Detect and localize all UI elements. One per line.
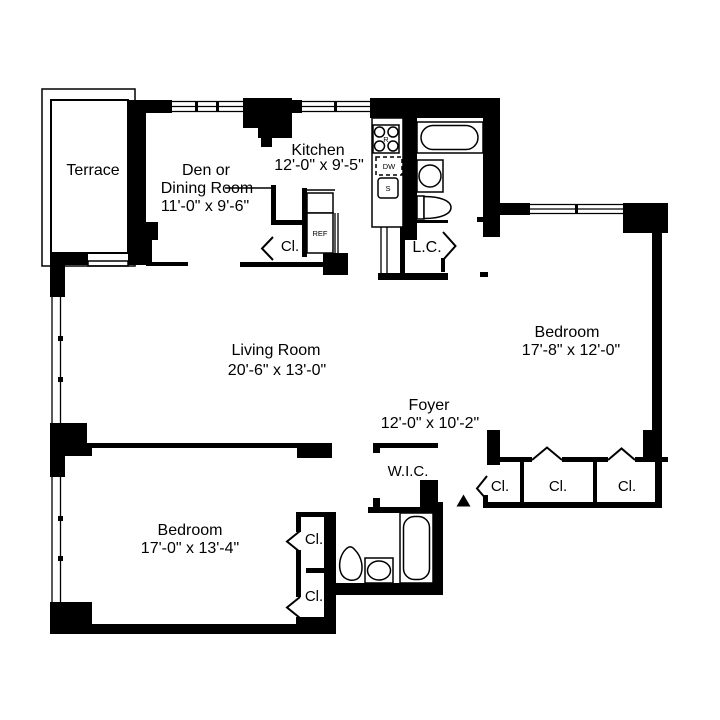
linen-closet-label: L.C. <box>412 239 441 256</box>
refrigerator-label: REF <box>313 229 328 238</box>
wic-label: W.I.C. <box>388 463 429 480</box>
bedroom-left-dims: 17'-0" x 13'-4" <box>141 540 239 557</box>
bedroom-left-label: Bedroom <box>158 522 223 539</box>
floorplan-page: Terrace Den or Dining Room 11'-0" x 9'-6… <box>0 0 720 720</box>
living-room-label: Living Room <box>232 342 321 359</box>
den-closet-label: Cl. <box>281 238 299 255</box>
den-dims: 11'-0" x 9'-6" <box>161 198 249 215</box>
left-closet1-label: Cl. <box>305 531 323 548</box>
range-label: R <box>383 135 389 144</box>
kitchen-dims: 12'-0" x 9'-5" <box>274 157 364 174</box>
bedroom-right-dims: 17'-8" x 12'-0" <box>522 342 620 359</box>
right-closet3-label: Cl. <box>618 478 636 495</box>
bedroom-right-label: Bedroom <box>535 324 600 341</box>
plan-background <box>0 0 720 720</box>
sink-top-icon <box>417 160 443 192</box>
foyer-dims: 12'-0" x 10'-2" <box>381 415 479 432</box>
cabinet-icon <box>307 193 333 213</box>
living-room-dims: 20'-6" x 13'-0" <box>228 362 326 379</box>
bathtub-bottom-icon <box>400 513 433 583</box>
left-closet2-label: Cl. <box>305 588 323 605</box>
right-closet1-label: Cl. <box>491 478 509 495</box>
den-label-line2: Dining Room <box>161 180 253 197</box>
foyer-label: Foyer <box>409 397 451 414</box>
sink-bottom-icon <box>365 558 393 583</box>
terrace-label: Terrace <box>66 162 119 179</box>
dishwasher-label: DW <box>383 162 396 171</box>
kitchen-sink-label: S <box>385 184 390 193</box>
den-label-line1: Den or <box>182 162 231 179</box>
floorplan-svg: Terrace Den or Dining Room 11'-0" x 9'-6… <box>0 0 720 720</box>
right-closet2-label: Cl. <box>549 478 567 495</box>
